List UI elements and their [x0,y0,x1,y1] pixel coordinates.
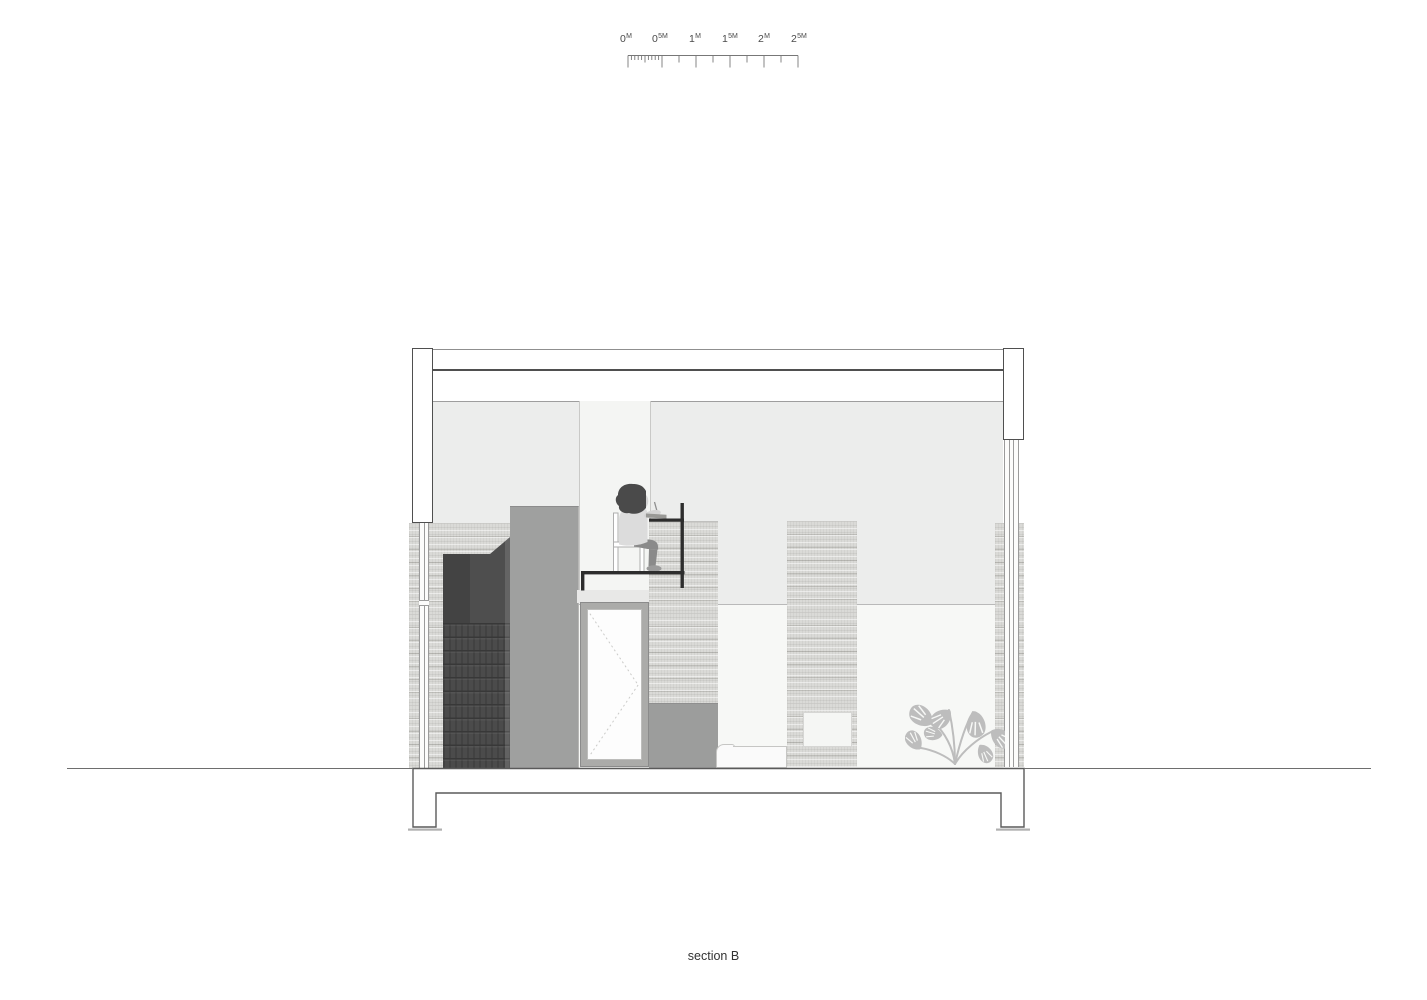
scale-label: 1M [689,33,701,45]
door [580,602,649,767]
right-wall-post [1003,348,1024,440]
mullion-line [1013,440,1014,767]
scale-ruler [626,54,802,70]
storage-volume [510,506,579,769]
mezzanine-frame [575,498,690,593]
right-cladding-outer [1019,523,1024,767]
drawing-canvas: 0M05M1M15M2M25M [0,0,1427,1000]
wall-niche [803,712,852,747]
monstera-plant [905,688,1005,770]
mullion-line [1009,440,1010,767]
ground-line-left [67,768,413,770]
left-window-glazing [419,523,429,768]
staircase [443,537,510,768]
mullion-line [424,523,425,768]
desk-top [649,519,684,522]
roof-slab [432,349,1003,371]
mullion-line [419,523,420,768]
scale-label: 2M [758,33,770,45]
stair-treads [443,623,510,768]
sofa-seat [733,746,787,768]
transom-mark [419,600,429,606]
scale-label: 05M [652,33,668,45]
scale-label: 15M [722,33,738,45]
door-swing-lines [588,610,641,759]
left-wall-post [412,348,433,523]
scale-label: 25M [791,33,807,45]
ground-line-right [1024,768,1371,770]
drawing-caption: section B [0,949,1427,963]
door-panel [587,609,642,760]
left-cladding-outer [409,523,419,768]
scale-label: 0M [620,33,632,45]
foundation [405,766,1045,834]
scale-bar: 0M05M1M15M2M25M [0,33,1427,73]
low-cabinet [649,703,718,768]
right-window-glazing [1004,440,1019,767]
